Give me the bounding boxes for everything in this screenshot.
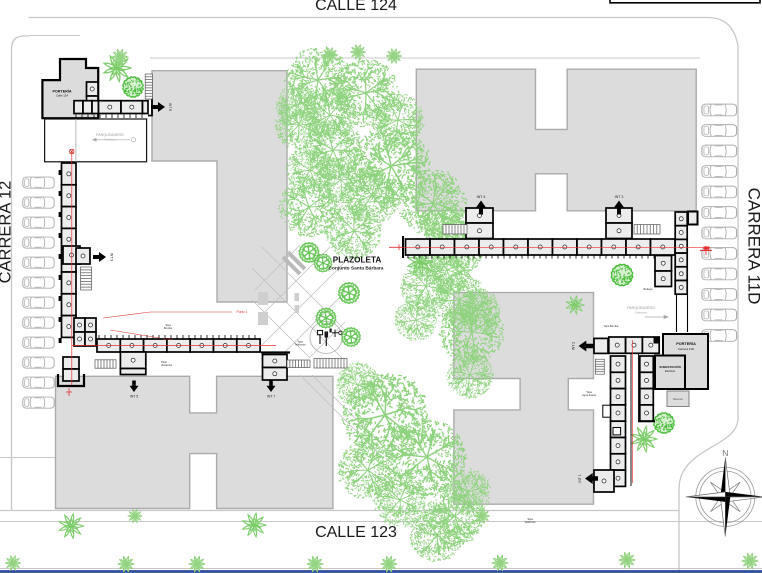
- svg-text:Calle 124: Calle 124: [56, 94, 68, 98]
- svg-text:Conjunto Santa Bárbara: Conjunto Santa Bárbara: [329, 265, 384, 271]
- svg-text:Acceso: Acceso: [163, 337, 173, 341]
- svg-text:CARRERA 12: CARRERA 12: [0, 181, 15, 284]
- svg-text:Carrera 11D: Carrera 11D: [678, 347, 695, 351]
- svg-text:SUBESTACIÓN: SUBESTACIÓN: [659, 364, 681, 369]
- svg-text:Eléctrica: Eléctrica: [665, 369, 676, 373]
- svg-text:INT 2: INT 2: [572, 342, 576, 350]
- svg-text:CARRERA 11D: CARRERA 11D: [745, 188, 762, 305]
- svg-text:PORTERÍA: PORTERÍA: [676, 341, 696, 346]
- svg-text:INT 1: INT 1: [578, 474, 582, 482]
- svg-text:Bodega: Bodega: [644, 287, 654, 291]
- svg-text:INT 7: INT 7: [267, 395, 275, 399]
- svg-text:INT 3: INT 3: [615, 195, 624, 199]
- svg-text:INT 4: INT 4: [477, 195, 486, 199]
- svg-text:INT 5: INT 5: [130, 395, 138, 399]
- svg-text:Teléfonos: Teléfonos: [294, 343, 306, 347]
- svg-text:PLAZOLETA: PLAZOLETA: [333, 256, 382, 265]
- svg-text:Agua lluvias: Agua lluvias: [582, 393, 597, 397]
- svg-text:Bomba: Bomba: [164, 326, 173, 330]
- svg-text:CALLE 123: CALLE 123: [315, 524, 397, 541]
- svg-text:INT 9: INT 9: [110, 253, 114, 261]
- svg-text:CALLE 124: CALLE 124: [315, 0, 397, 14]
- svg-text:Basuras: Basuras: [673, 397, 683, 401]
- svg-text:Visitantes: Visitantes: [161, 363, 173, 367]
- svg-text:Teléfonos: Teléfonos: [524, 520, 536, 524]
- svg-text:Visitantes: Visitantes: [635, 311, 648, 315]
- svg-text:Punto 1: Punto 1: [237, 310, 248, 314]
- svg-text:Tapa Bomba: Tapa Bomba: [604, 324, 619, 328]
- svg-text:INT 8: INT 8: [168, 103, 172, 111]
- svg-text:N: N: [722, 448, 728, 458]
- svg-text:PARQUEADERO: PARQUEADERO: [96, 133, 124, 137]
- svg-text:PARQUEADERO: PARQUEADERO: [627, 306, 655, 310]
